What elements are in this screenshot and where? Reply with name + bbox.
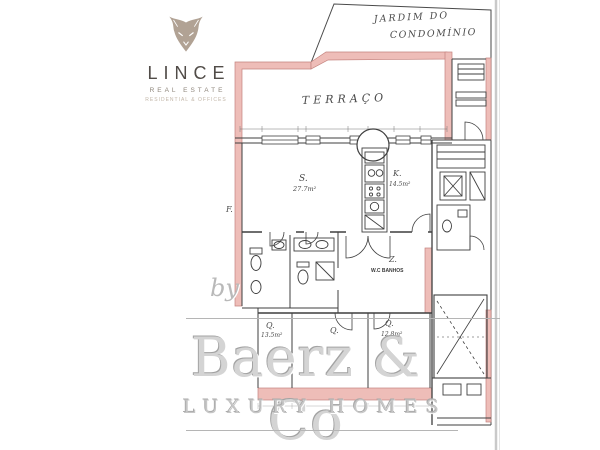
lynx-icon <box>166 16 206 54</box>
logo-subtitle: REAL ESTATE <box>139 87 233 94</box>
logo-tagline: RESIDENTIAL & OFFICES <box>139 97 233 103</box>
logo-brand: LINCE <box>139 63 233 84</box>
bedroom2-label: Q. <box>330 326 339 335</box>
bathroom-fixtures <box>250 238 334 294</box>
bedroom3-area: 12.8m² <box>381 331 403 338</box>
living-room-area: 27.7m² <box>292 185 317 193</box>
terrace-label: TERRAÇO <box>302 91 388 107</box>
page-edge-line <box>496 0 500 450</box>
living-room-label: S. <box>299 174 308 184</box>
garden-boundary <box>309 4 491 425</box>
kitchen-area: 14.5m² <box>389 181 411 188</box>
bedroom3-label: Q. <box>385 319 394 328</box>
facade-mark: F. <box>225 205 233 214</box>
stairwell <box>434 295 487 378</box>
wall-lines <box>235 59 491 425</box>
bedroom1-label: Q. <box>266 321 275 330</box>
kitchen-label: K. <box>392 169 402 178</box>
bedroom1-area: 13.5m² <box>261 332 283 339</box>
dimension-line-bottom <box>258 403 432 409</box>
garden-label-line1: JARDIM DO <box>372 10 450 25</box>
service-core <box>437 64 486 395</box>
garden-label-line2: CONDOMÍNIO <box>390 26 477 41</box>
hall-label: Z. <box>388 255 397 264</box>
hall-sublabel: W.C BANHOS <box>371 268 404 274</box>
lince-logo: LINCE REAL ESTATE RESIDENTIAL & OFFICES <box>139 16 233 103</box>
scanned-floorplan-page: JARDIM DO CONDOMÍNIO TERRAÇO F. S. 27.7m… <box>0 0 600 450</box>
pink-walls <box>235 52 491 422</box>
floor-plan-drawing: JARDIM DO CONDOMÍNIO TERRAÇO F. S. 27.7m… <box>0 0 600 450</box>
dimension-line <box>240 126 447 132</box>
